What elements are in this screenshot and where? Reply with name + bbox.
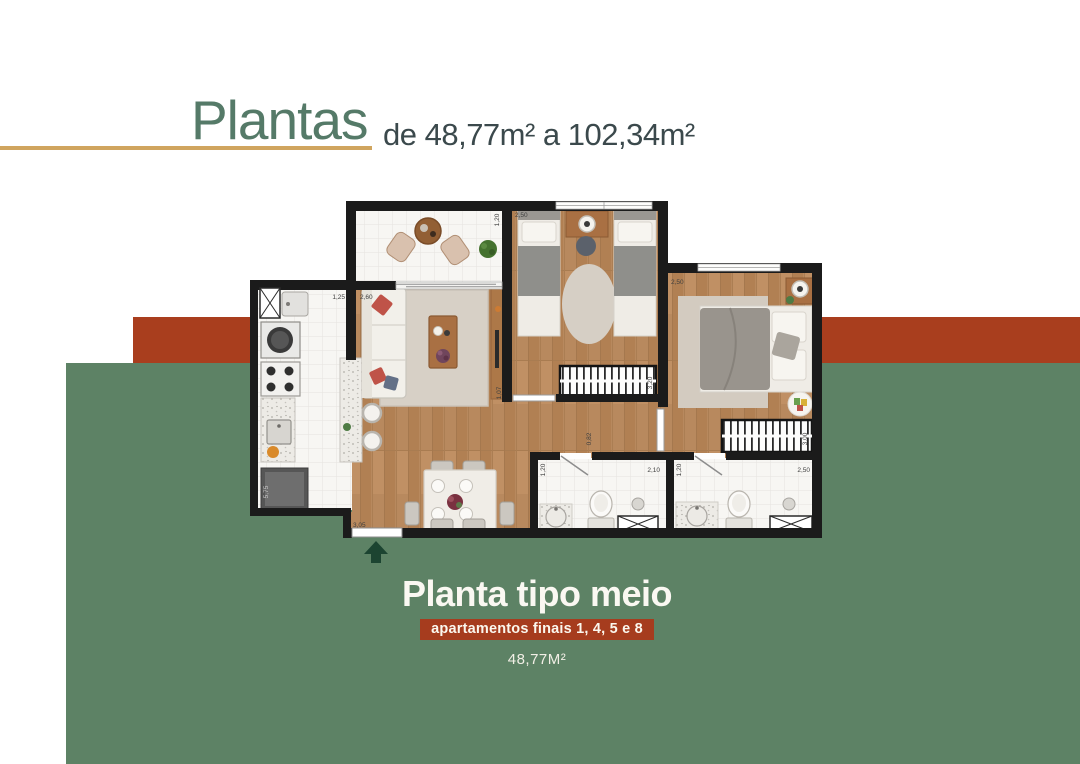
table-plate xyxy=(420,224,428,232)
utility-shaft xyxy=(260,288,280,318)
pillow xyxy=(618,222,652,242)
table-flowers xyxy=(436,349,450,363)
dim-rack: 1,07 xyxy=(496,386,503,399)
decor xyxy=(801,399,807,406)
dim-bed1-w: 2,50 xyxy=(515,212,528,219)
plan-name: Planta tipo meio xyxy=(287,576,787,612)
rack-decor xyxy=(495,306,501,312)
dining-chair xyxy=(500,502,514,525)
peninsula-counter xyxy=(340,358,362,462)
single-bed xyxy=(518,211,560,336)
pouf xyxy=(576,236,596,256)
bedroom1-window xyxy=(556,202,652,209)
plate xyxy=(460,480,473,493)
fruit-bowl xyxy=(267,446,279,458)
bedroom1-door xyxy=(513,395,555,401)
dim-hall: 0,82 xyxy=(586,432,593,445)
plate xyxy=(432,480,445,493)
page-title: Plantas xyxy=(191,93,367,148)
shower-head xyxy=(632,498,644,510)
plant-leaf xyxy=(481,243,487,249)
flower-leaf xyxy=(456,502,462,508)
single-bed xyxy=(614,211,656,336)
toilet-seat xyxy=(594,494,608,512)
kitchen-sink-top xyxy=(282,292,308,316)
entry-door xyxy=(352,528,402,537)
entry-arrow-icon xyxy=(364,541,388,563)
plan-area: 48,77M² xyxy=(287,651,787,668)
blanket xyxy=(518,246,560,296)
flower xyxy=(438,351,443,356)
kitchen-sink xyxy=(267,420,291,444)
burner xyxy=(285,367,294,376)
dim-bath1-w: 1,20 xyxy=(540,463,547,476)
blanket xyxy=(614,246,656,296)
dim-kitchen-len: 5,75 xyxy=(263,485,270,498)
bedroom1-rug xyxy=(562,264,616,344)
plan-caption: Planta tipo meio apartamentos finais 1, … xyxy=(287,576,787,668)
faucet xyxy=(286,302,290,306)
decor xyxy=(797,405,803,411)
page-subtitle: de 48,77m² a 102,34m² xyxy=(383,119,695,150)
flower xyxy=(444,356,449,361)
dim-bath2-len: 2,50 xyxy=(797,467,810,474)
faucet xyxy=(695,506,699,510)
table-cup xyxy=(434,327,443,336)
dim-entry: 3,05 xyxy=(353,522,366,529)
bedroom2-door xyxy=(657,409,664,451)
burner xyxy=(267,383,276,392)
burner xyxy=(285,383,294,392)
balcony-sliding-door xyxy=(396,282,502,289)
dim-wardrobe2: 3,00 xyxy=(802,432,809,445)
dim-bed2-w: 2,50 xyxy=(671,279,684,286)
apartments-badge: apartamentos finais 1, 4, 5 e 8 xyxy=(420,619,654,640)
headboard xyxy=(614,211,656,220)
floor-plan: 1,25 2,60 1,20 2,50 2,50 3,20 1,07 0,82 … xyxy=(245,195,830,565)
tv xyxy=(495,330,499,368)
flower xyxy=(448,496,454,502)
balcony-plant xyxy=(479,240,497,258)
lamp-center xyxy=(797,286,803,292)
bedroom2-window xyxy=(698,264,780,271)
table-decor xyxy=(430,231,436,237)
faucet xyxy=(277,424,281,428)
dim-living: 2,60 xyxy=(360,294,373,301)
counter-plant xyxy=(343,423,351,431)
pillow xyxy=(522,222,556,242)
stool xyxy=(363,404,381,422)
fridge-top xyxy=(265,472,304,506)
table-decor xyxy=(444,330,450,336)
nightstand-plant xyxy=(786,296,794,304)
balcony-table xyxy=(415,218,441,244)
dim-bed1-len: 3,20 xyxy=(647,376,654,389)
dim-bath2-w: 1,20 xyxy=(676,463,683,476)
sofa-back xyxy=(362,288,372,398)
stove xyxy=(261,362,300,396)
dim-balcony: 1,20 xyxy=(494,213,501,226)
toilet-seat xyxy=(732,494,746,512)
dim-bath1-len: 2,10 xyxy=(647,467,660,474)
faucet xyxy=(554,507,558,511)
washer-drum xyxy=(271,331,289,349)
dim-kitchen: 1,25 xyxy=(332,294,345,301)
burner xyxy=(267,367,276,376)
stool xyxy=(363,432,381,450)
dining-chair xyxy=(405,502,419,525)
shower-head xyxy=(783,498,795,510)
lamp-center xyxy=(584,221,590,227)
plant-leaf xyxy=(489,249,495,255)
decor xyxy=(794,398,800,405)
centerpiece-flowers xyxy=(447,494,463,510)
